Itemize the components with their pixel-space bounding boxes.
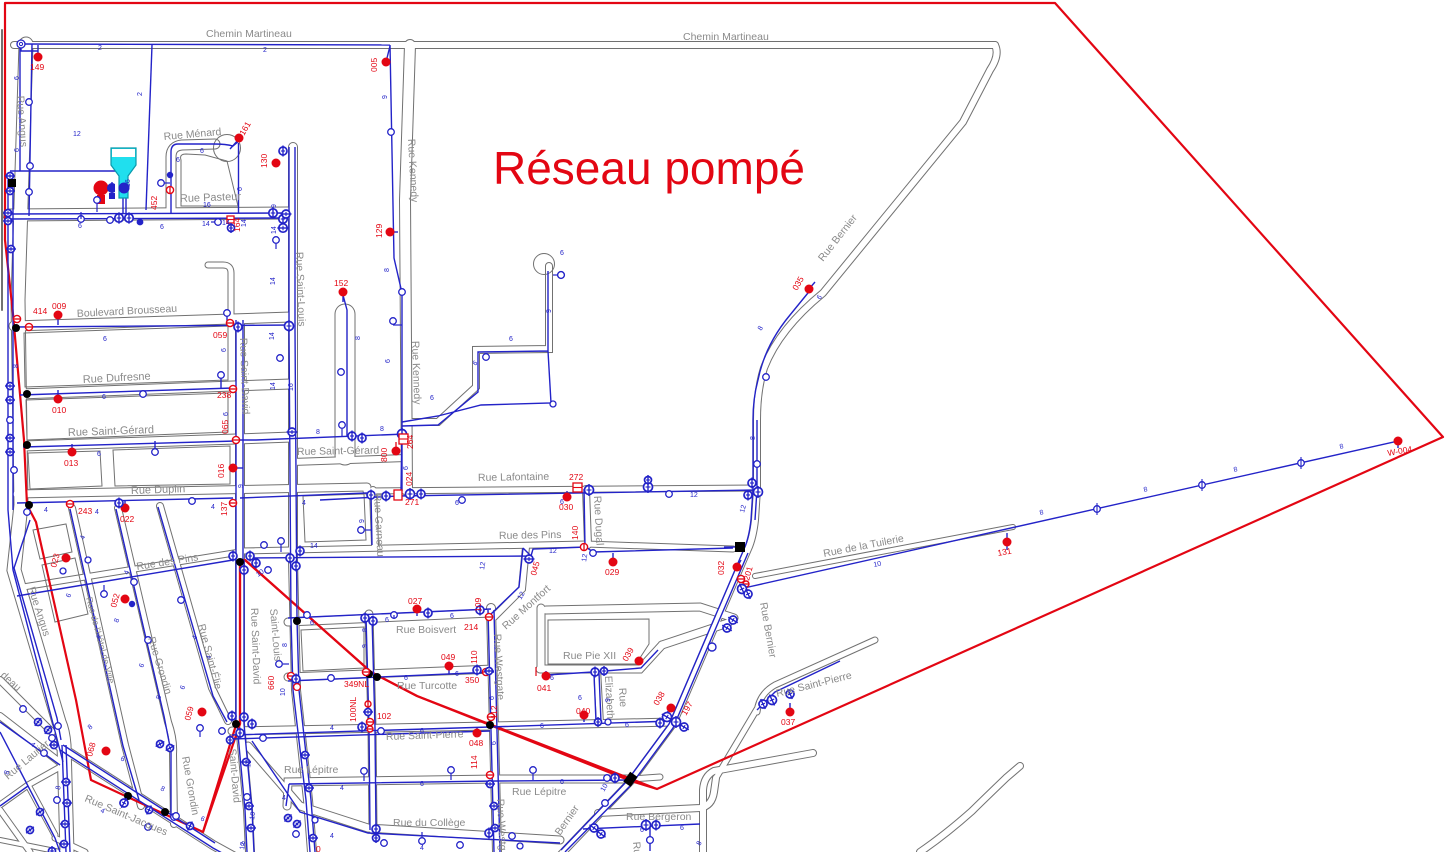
- svg-text:6: 6: [430, 395, 434, 402]
- svg-text:Rue Saint-Gérard: Rue Saint-Gérard: [297, 445, 380, 458]
- svg-text:029: 029: [605, 567, 619, 577]
- svg-text:Ru: Ru: [630, 841, 643, 852]
- svg-text:6: 6: [509, 336, 513, 343]
- svg-text:6: 6: [200, 148, 204, 155]
- svg-text:4: 4: [282, 795, 286, 802]
- svg-text:272: 272: [569, 472, 583, 482]
- svg-text:152: 152: [334, 278, 348, 288]
- svg-text:800: 800: [379, 448, 389, 462]
- svg-text:129: 129: [374, 224, 384, 238]
- svg-text:214: 214: [464, 622, 478, 632]
- svg-text:Chemin Martineau: Chemin Martineau: [683, 31, 769, 43]
- svg-text:12: 12: [690, 492, 698, 499]
- svg-text:048: 048: [469, 738, 483, 748]
- svg-text:2: 2: [263, 47, 267, 54]
- svg-text:040: 040: [576, 706, 590, 716]
- svg-text:4: 4: [330, 833, 334, 840]
- svg-text:6: 6: [420, 728, 424, 735]
- svg-text:6: 6: [102, 394, 106, 401]
- svg-text:100NL: 100NL: [348, 697, 358, 722]
- svg-text:6: 6: [560, 250, 564, 257]
- svg-text:6: 6: [491, 741, 498, 745]
- svg-text:109: 109: [473, 598, 483, 612]
- svg-text:6: 6: [14, 76, 21, 80]
- svg-text:102: 102: [377, 711, 391, 721]
- svg-text:149: 149: [30, 62, 44, 72]
- svg-text:6: 6: [489, 696, 496, 700]
- svg-text:022: 022: [120, 514, 134, 524]
- svg-text:6: 6: [403, 466, 410, 470]
- svg-text:8: 8: [13, 364, 20, 368]
- svg-text:4: 4: [340, 785, 344, 792]
- svg-text:9: 9: [382, 95, 389, 99]
- svg-text:14: 14: [222, 220, 230, 227]
- svg-text:6: 6: [97, 451, 101, 458]
- svg-text:Rue Lépitre: Rue Lépitre: [512, 786, 566, 798]
- svg-text:6: 6: [223, 412, 230, 416]
- svg-text:12: 12: [581, 553, 589, 562]
- svg-text:414: 414: [33, 306, 47, 316]
- svg-text:8: 8: [282, 643, 289, 647]
- svg-text:Rue Lafontaine: Rue Lafontaine: [478, 471, 550, 484]
- svg-text:660: 660: [266, 676, 276, 690]
- svg-text:6: 6: [625, 722, 629, 729]
- svg-text:4: 4: [420, 845, 424, 852]
- svg-text:027: 027: [408, 596, 422, 606]
- svg-text:6: 6: [420, 781, 424, 788]
- svg-text:065: 065: [220, 420, 230, 434]
- svg-text:14: 14: [310, 543, 318, 550]
- svg-text:0: 0: [316, 844, 321, 852]
- svg-text:6: 6: [103, 336, 107, 343]
- svg-text:14: 14: [269, 332, 276, 340]
- svg-text:8: 8: [380, 426, 384, 433]
- svg-text:6: 6: [578, 695, 582, 702]
- svg-text:8: 8: [384, 268, 391, 272]
- svg-text:041: 041: [537, 683, 551, 693]
- svg-text:6: 6: [540, 723, 544, 730]
- svg-text:Rue Pie XII: Rue Pie XII: [563, 650, 616, 662]
- svg-text:016: 016: [216, 464, 226, 478]
- svg-text:024: 024: [404, 472, 414, 486]
- svg-text:Elizabeth: Elizabeth: [602, 676, 616, 720]
- svg-text:059: 059: [213, 330, 227, 340]
- svg-text:9: 9: [362, 644, 369, 648]
- svg-text:350: 350: [465, 675, 479, 685]
- svg-text:10: 10: [280, 688, 287, 696]
- svg-text:243: 243: [78, 506, 92, 516]
- svg-text:Rue des Pins: Rue des Pins: [499, 529, 562, 542]
- svg-text:6: 6: [176, 157, 180, 164]
- svg-text:12: 12: [549, 548, 557, 555]
- svg-text:4: 4: [211, 504, 215, 511]
- svg-text:8: 8: [316, 429, 320, 436]
- svg-text:14: 14: [270, 382, 277, 390]
- svg-text:114: 114: [469, 755, 479, 769]
- svg-text:12: 12: [73, 131, 81, 138]
- svg-text:110: 110: [469, 650, 479, 664]
- svg-text:6: 6: [550, 675, 554, 682]
- svg-text:Rue Lépitre: Rue Lépitre: [284, 764, 338, 776]
- svg-text:16: 16: [288, 383, 295, 391]
- svg-text:005: 005: [369, 58, 379, 72]
- svg-text:4: 4: [302, 500, 306, 507]
- svg-text:6: 6: [455, 671, 459, 678]
- svg-text:6: 6: [237, 187, 244, 191]
- svg-text:Rue Bergeron: Rue Bergeron: [626, 811, 692, 823]
- svg-text:Rue: Rue: [616, 688, 629, 708]
- svg-text:9: 9: [359, 519, 366, 523]
- svg-text:6: 6: [385, 359, 392, 363]
- svg-text:14: 14: [241, 219, 248, 227]
- svg-text:049: 049: [441, 652, 455, 662]
- svg-text:10: 10: [245, 759, 253, 768]
- svg-text:9: 9: [605, 698, 612, 702]
- svg-text:14: 14: [270, 277, 277, 285]
- svg-text:264: 264: [405, 435, 415, 449]
- svg-text:6: 6: [221, 348, 228, 352]
- svg-text:4: 4: [95, 509, 99, 516]
- svg-text:6: 6: [640, 827, 644, 834]
- svg-text:Réseau pompé: Réseau pompé: [493, 142, 805, 194]
- svg-text:6: 6: [160, 224, 164, 231]
- svg-text:6: 6: [14, 148, 21, 152]
- svg-text:9: 9: [238, 484, 245, 488]
- svg-text:238: 238: [217, 390, 231, 400]
- svg-text:14: 14: [202, 221, 210, 228]
- svg-text:6: 6: [385, 617, 389, 624]
- svg-text:037: 037: [781, 717, 795, 727]
- svg-text:6: 6: [455, 500, 459, 507]
- svg-text:271: 271: [405, 497, 419, 507]
- svg-text:009: 009: [52, 301, 66, 311]
- svg-text:6: 6: [404, 675, 408, 682]
- svg-text:6: 6: [560, 499, 564, 506]
- svg-text:6: 6: [310, 620, 314, 627]
- svg-text:9: 9: [546, 309, 553, 313]
- svg-text:032: 032: [716, 561, 726, 575]
- svg-text:2: 2: [98, 45, 102, 52]
- svg-text:10: 10: [249, 811, 257, 820]
- svg-text:013: 013: [64, 458, 78, 468]
- svg-text:140: 140: [570, 526, 580, 540]
- svg-text:Rue Duplin: Rue Duplin: [131, 483, 186, 497]
- svg-text:4: 4: [330, 725, 334, 732]
- svg-text:8: 8: [362, 628, 369, 632]
- svg-text:Rue du Collège: Rue du Collège: [393, 817, 466, 829]
- svg-text:Rue Boisvert: Rue Boisvert: [396, 624, 456, 636]
- svg-text:2: 2: [137, 92, 144, 96]
- svg-text:6: 6: [560, 779, 564, 786]
- svg-text:4: 4: [44, 507, 48, 514]
- svg-text:12: 12: [479, 561, 487, 570]
- svg-text:6: 6: [78, 223, 82, 230]
- svg-text:6: 6: [680, 825, 684, 832]
- svg-text:452: 452: [149, 196, 159, 210]
- svg-text:8: 8: [355, 336, 362, 340]
- svg-text:Rue Kennedy: Rue Kennedy: [409, 341, 423, 406]
- svg-text:16: 16: [125, 179, 132, 187]
- svg-text:16: 16: [203, 202, 211, 209]
- svg-text:137: 137: [219, 502, 229, 516]
- svg-text:112: 112: [489, 705, 499, 719]
- svg-text:14: 14: [271, 226, 278, 234]
- svg-text:Chemin Martineau: Chemin Martineau: [206, 28, 292, 40]
- svg-text:010: 010: [52, 405, 66, 415]
- svg-text:9: 9: [271, 204, 278, 208]
- svg-text:6: 6: [450, 613, 454, 620]
- svg-text:349NL: 349NL: [344, 679, 369, 689]
- svg-text:130: 130: [259, 154, 269, 168]
- svg-text:8: 8: [750, 436, 757, 440]
